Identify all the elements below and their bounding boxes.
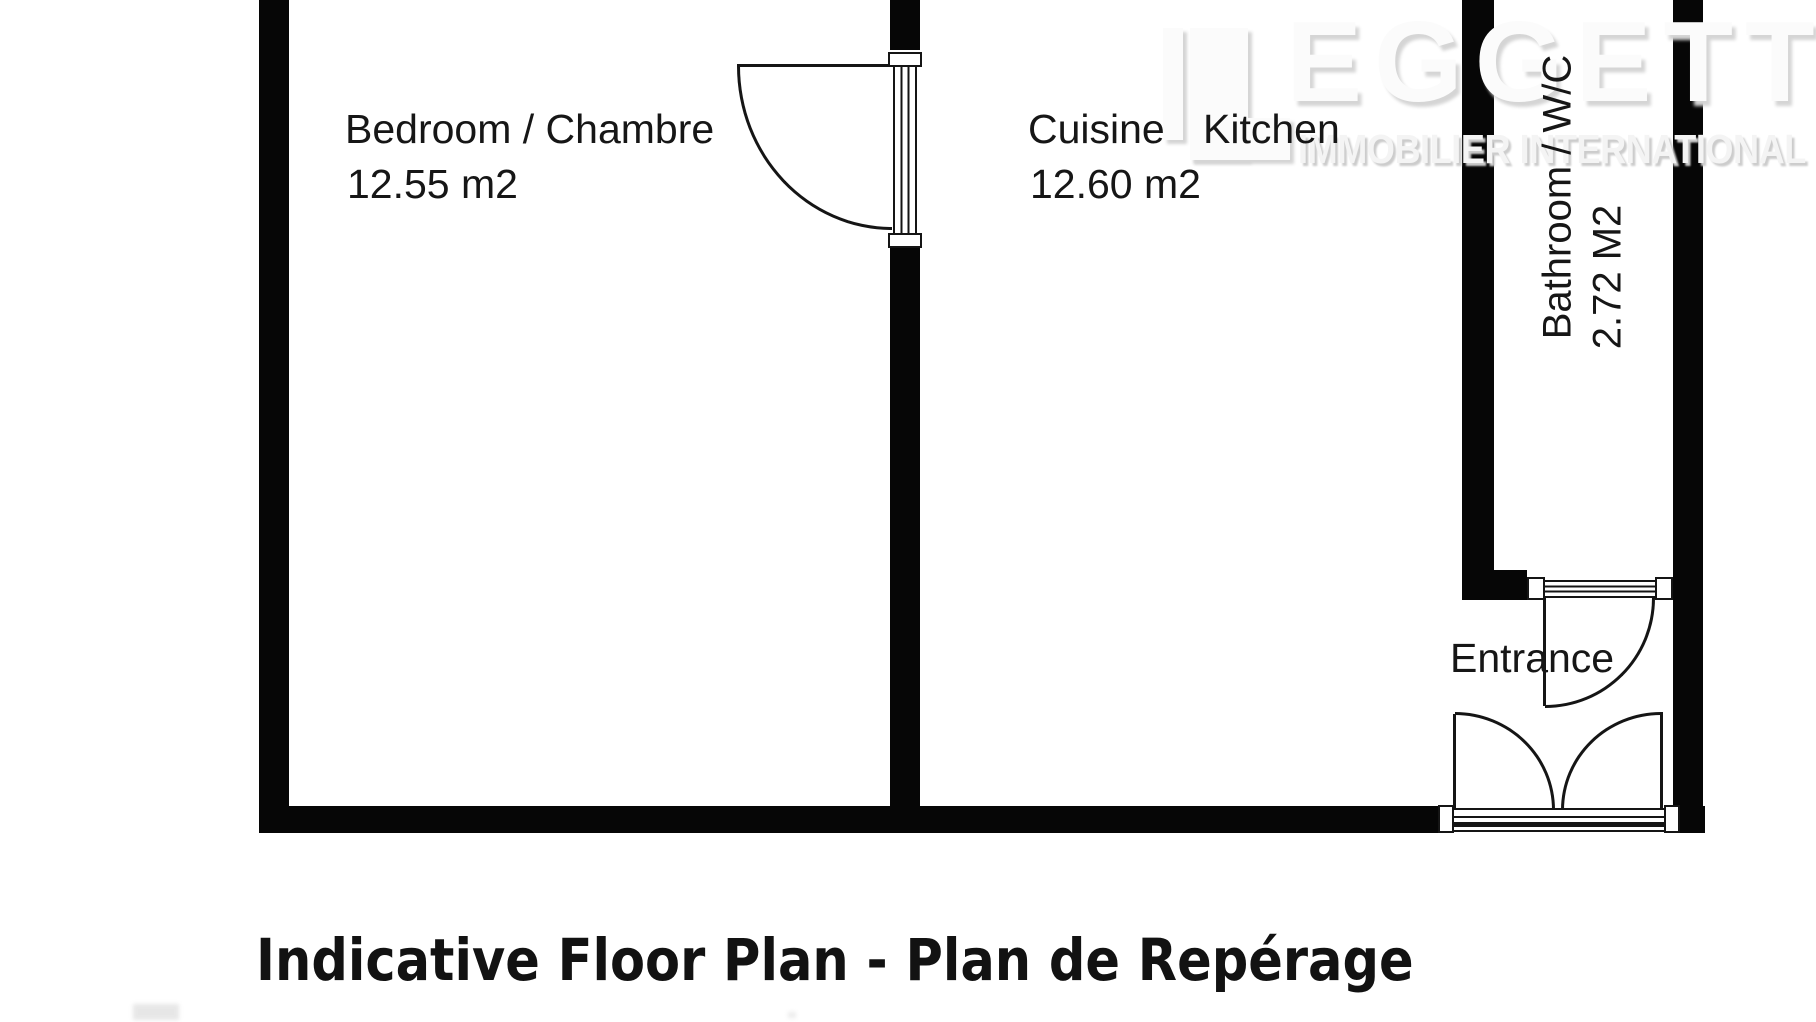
scan-artifact-center	[788, 1012, 796, 1018]
entrance-door-jamb-left	[1438, 805, 1454, 833]
bathroom-door-jamb-right	[1655, 577, 1673, 600]
kitchen-label-fr: Cuisine	[1028, 106, 1165, 153]
entrance-door-left-swing-arc	[1455, 712, 1555, 810]
bedroom-door-jamb-bottom	[888, 233, 922, 248]
entrance-door-jamb-right	[1664, 805, 1680, 833]
leggett-logo-bar	[1163, 28, 1183, 140]
wall-bathroom-stub	[1462, 570, 1527, 600]
kitchen-area: 12.60 m2	[1030, 161, 1201, 208]
bathroom-door-jamb-left	[1527, 577, 1545, 600]
floor-plan: EGGETT IMMOBILIER INTERNATIONAL Bedroom …	[0, 0, 1816, 1022]
bedroom-area: 12.55 m2	[347, 161, 518, 208]
scan-artifact-left	[133, 1004, 179, 1020]
bathroom-door-leaf-closed	[1545, 580, 1655, 598]
entrance-door-threshold	[1454, 808, 1664, 832]
bathroom-area: 2.72 M2	[1586, 205, 1631, 350]
bathroom-label: Bathroom / W/C	[1536, 55, 1581, 340]
wall-divider-main	[890, 248, 920, 806]
bedroom-door-swing-arc	[737, 66, 892, 230]
kitchen-label-en: Kitchen	[1203, 106, 1340, 153]
wall-divider-top	[890, 0, 920, 50]
bedroom-door-jamb-top	[888, 52, 922, 67]
bedroom-label: Bedroom / Chambre	[345, 106, 714, 153]
wall-corner-bottom-right	[1678, 806, 1705, 833]
plan-caption: Indicative Floor Plan - Plan de Repérage	[256, 926, 1414, 994]
entrance-door-right-swing-arc	[1561, 712, 1661, 810]
entrance-label: Entrance	[1450, 635, 1614, 682]
bedroom-door-leaf-closed	[893, 67, 917, 233]
wall-left	[259, 0, 289, 833]
wall-bottom	[259, 806, 1438, 833]
